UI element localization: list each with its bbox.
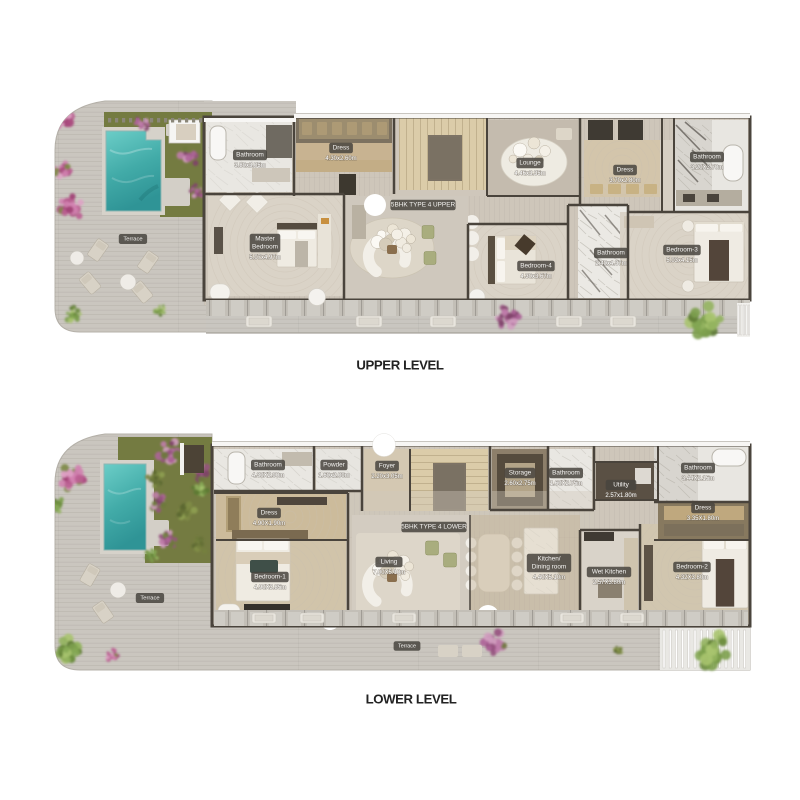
svg-text:Dress: Dress xyxy=(333,145,350,152)
svg-text:Bedroom-1: Bedroom-1 xyxy=(254,574,286,581)
svg-text:Bedroom-4: Bedroom-4 xyxy=(520,263,552,270)
svg-text:LOWER LEVEL: LOWER LEVEL xyxy=(366,692,457,707)
svg-text:4.30x2.60m: 4.30x2.60m xyxy=(325,156,356,162)
svg-text:Utility: Utility xyxy=(613,482,629,489)
svg-text:5BHK TYPE 4 LOWER: 5BHK TYPE 4 LOWER xyxy=(401,524,467,531)
svg-text:3.35X1.80m: 3.35X1.80m xyxy=(687,516,719,522)
svg-text:Bedroom: Bedroom xyxy=(252,244,278,251)
svg-text:Bathroom: Bathroom xyxy=(693,154,721,161)
svg-text:UPPER LEVEL: UPPER LEVEL xyxy=(356,358,444,373)
svg-text:1.60X2.75m: 1.60X2.75m xyxy=(550,481,582,487)
svg-text:Kitchen/: Kitchen/ xyxy=(537,556,560,563)
svg-text:Bathroom: Bathroom xyxy=(684,465,712,472)
svg-text:4.90X1.90m: 4.90X1.90m xyxy=(253,521,285,527)
svg-text:4.46x3.35m: 4.46x3.35m xyxy=(514,171,545,177)
svg-text:Dress: Dress xyxy=(617,167,634,174)
svg-text:Bedroom-3: Bedroom-3 xyxy=(666,247,698,254)
svg-text:Terrace: Terrace xyxy=(398,643,416,649)
svg-text:Living: Living xyxy=(381,559,398,566)
svg-text:Dress: Dress xyxy=(261,510,278,517)
svg-text:4.90X3.85m: 4.90X3.85m xyxy=(254,585,286,591)
svg-text:Dress: Dress xyxy=(695,505,712,512)
svg-text:Dining room: Dining room xyxy=(532,564,566,571)
svg-text:Bathroom: Bathroom xyxy=(597,250,625,257)
svg-text:Bedroom-2: Bedroom-2 xyxy=(676,564,708,571)
svg-text:3.80x3.05m: 3.80x3.05m xyxy=(234,163,265,169)
svg-text:3.20X3.70m: 3.20X3.70m xyxy=(691,165,723,171)
svg-text:4.30x3.67m: 4.30x3.67m xyxy=(520,274,551,280)
svg-text:Storage: Storage xyxy=(509,470,532,477)
svg-text:Powder: Powder xyxy=(323,462,346,469)
svg-text:2.60x2.75m: 2.60x2.75m xyxy=(504,481,535,487)
svg-text:5.03x4.15m: 5.03x4.15m xyxy=(666,258,697,264)
svg-text:2.40x4.37m: 2.40x4.37m xyxy=(595,261,626,267)
svg-text:Terrace: Terrace xyxy=(123,237,142,243)
svg-text:4.32X3.80m: 4.32X3.80m xyxy=(676,575,708,581)
svg-text:5BHK TYPE 4 UPPER: 5BHK TYPE 4 UPPER xyxy=(391,202,456,209)
svg-text:Foyer: Foyer xyxy=(379,463,396,470)
svg-text:3.70x2.80m: 3.70x2.80m xyxy=(609,178,640,184)
svg-text:2.57x1.80m: 2.57x1.80m xyxy=(605,493,636,499)
svg-text:5.07x4.97m: 5.07x4.97m xyxy=(249,255,280,261)
svg-text:Bathroom: Bathroom xyxy=(552,470,580,477)
svg-text:1.60x2.00m: 1.60x2.00m xyxy=(318,473,349,479)
svg-text:Master: Master xyxy=(255,236,275,243)
svg-text:2.20x3.05m: 2.20x3.05m xyxy=(371,474,402,480)
svg-text:2.57X3.80m: 2.57X3.80m xyxy=(593,580,625,586)
svg-text:Terrace: Terrace xyxy=(140,596,159,602)
svg-text:7.00X5.10m: 7.00X5.10m xyxy=(373,570,405,576)
svg-text:4.30X2.00m: 4.30X2.00m xyxy=(252,473,284,479)
svg-text:3.44X2.15m: 3.44X2.15m xyxy=(682,476,714,482)
svg-text:Bathroom: Bathroom xyxy=(254,462,282,469)
svg-text:4.40X5.10m: 4.40X5.10m xyxy=(533,575,565,581)
svg-text:Wet Kitchen: Wet Kitchen xyxy=(592,569,627,576)
svg-text:Bathroom: Bathroom xyxy=(236,152,264,159)
svg-text:Lounge: Lounge xyxy=(519,160,541,167)
